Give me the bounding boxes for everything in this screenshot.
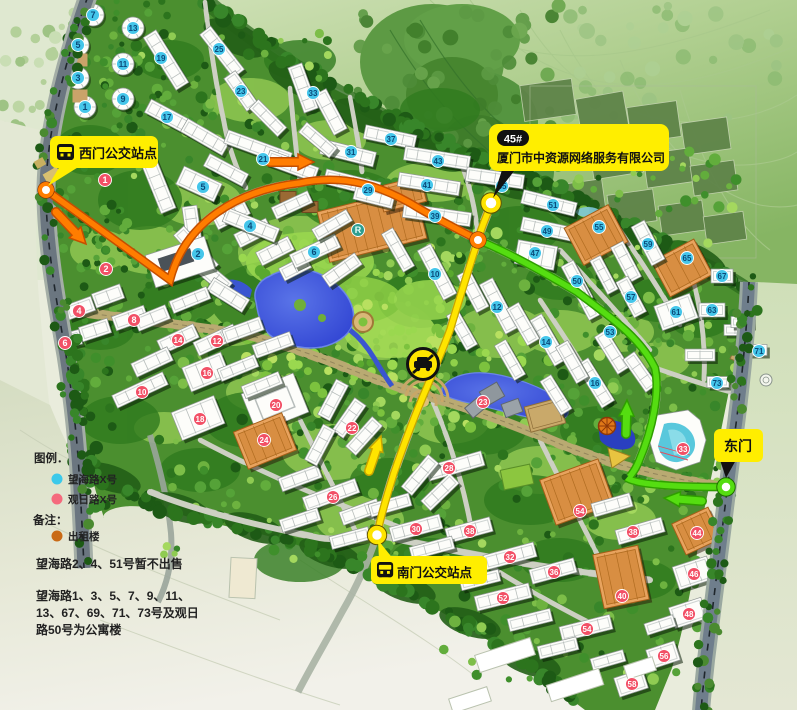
svg-text:44: 44 [693, 529, 702, 538]
svg-text:47: 47 [531, 249, 540, 258]
svg-text:50: 50 [573, 277, 582, 286]
svg-text:东门: 东门 [724, 438, 752, 454]
svg-text:望海路2、4、51号暂不出售: 望海路2、4、51号暂不出售 [36, 556, 183, 571]
svg-text:41: 41 [423, 181, 432, 190]
svg-text:56: 56 [660, 652, 669, 661]
svg-text:观日路X号: 观日路X号 [68, 493, 117, 506]
svg-text:28: 28 [445, 464, 454, 473]
svg-text:71: 71 [755, 347, 764, 356]
svg-text:26: 26 [329, 493, 338, 502]
svg-text:40: 40 [618, 592, 627, 601]
svg-text:30: 30 [412, 525, 421, 534]
svg-text:10: 10 [138, 388, 147, 397]
svg-text:46: 46 [690, 570, 699, 579]
svg-text:西门公交站点: 西门公交站点 [79, 146, 157, 161]
svg-text:61: 61 [672, 308, 681, 317]
svg-text:19: 19 [157, 54, 166, 63]
svg-text:备注：: 备注： [32, 513, 68, 527]
svg-text:39: 39 [431, 212, 440, 221]
svg-text:11: 11 [119, 60, 128, 69]
svg-text:14: 14 [542, 338, 551, 347]
svg-text:38: 38 [466, 527, 475, 536]
svg-text:12: 12 [213, 337, 222, 346]
svg-text:2: 2 [195, 249, 200, 259]
svg-text:16: 16 [591, 379, 600, 388]
svg-text:22: 22 [348, 424, 357, 433]
svg-text:6: 6 [311, 247, 316, 257]
svg-text:38: 38 [629, 528, 638, 537]
svg-text:58: 58 [628, 680, 637, 689]
svg-text:31: 31 [347, 148, 356, 157]
svg-text:5: 5 [200, 182, 205, 192]
svg-text:54: 54 [583, 625, 592, 634]
svg-text:25: 25 [215, 45, 224, 54]
svg-text:13、67、69、71、73号及观日: 13、67、69、71、73号及观日 [36, 605, 199, 620]
svg-text:67: 67 [718, 272, 727, 281]
svg-text:48: 48 [685, 610, 694, 619]
svg-text:18: 18 [196, 415, 205, 424]
svg-text:52: 52 [499, 594, 508, 603]
svg-text:14: 14 [174, 336, 183, 345]
svg-text:17: 17 [163, 113, 172, 122]
svg-text:10: 10 [431, 270, 440, 279]
svg-text:23: 23 [237, 87, 246, 96]
svg-text:21: 21 [259, 155, 268, 164]
svg-text:2: 2 [103, 264, 108, 274]
svg-text:54: 54 [576, 507, 585, 516]
svg-text:4: 4 [76, 306, 81, 316]
svg-text:路50号为公寓楼: 路50号为公寓楼 [36, 622, 121, 637]
svg-text:33: 33 [679, 445, 688, 454]
svg-text:63: 63 [708, 306, 717, 315]
svg-text:57: 57 [627, 293, 636, 302]
svg-text:4: 4 [247, 221, 252, 231]
svg-text:51: 51 [549, 201, 558, 210]
svg-text:43: 43 [434, 157, 443, 166]
svg-text:16: 16 [203, 369, 212, 378]
svg-text:9: 9 [120, 94, 125, 104]
svg-text:R: R [355, 225, 362, 235]
svg-text:12: 12 [493, 303, 502, 312]
svg-text:6: 6 [62, 338, 67, 348]
svg-text:1: 1 [82, 102, 87, 112]
svg-text:南门公交站点: 南门公交站点 [397, 565, 473, 580]
svg-text:53: 53 [606, 328, 615, 337]
svg-text:20: 20 [272, 401, 281, 410]
svg-text:59: 59 [644, 240, 653, 249]
svg-text:8: 8 [131, 315, 136, 325]
svg-text:32: 32 [506, 553, 515, 562]
svg-text:55: 55 [595, 223, 604, 232]
svg-text:45#: 45# [504, 134, 522, 146]
svg-text:65: 65 [683, 254, 692, 263]
svg-text:49: 49 [543, 227, 552, 236]
svg-text:出租楼: 出租楼 [68, 530, 100, 543]
svg-text:1: 1 [102, 175, 107, 185]
svg-text:望海路X号: 望海路X号 [68, 473, 117, 486]
svg-text:5: 5 [75, 40, 80, 50]
svg-text:29: 29 [364, 186, 373, 195]
svg-text:图例．: 图例． [34, 451, 69, 465]
svg-text:24: 24 [260, 436, 269, 445]
svg-text:23: 23 [479, 398, 488, 407]
svg-text:厦门市中资源网络服务有限公司: 厦门市中资源网络服务有限公司 [497, 150, 665, 165]
svg-text:望海路1、3、5、7、9、11、: 望海路1、3、5、7、9、11、 [36, 588, 190, 603]
svg-text:33: 33 [309, 89, 318, 98]
svg-text:73: 73 [713, 379, 722, 388]
svg-text:37: 37 [387, 135, 396, 144]
svg-text:13: 13 [129, 24, 138, 33]
svg-text:7: 7 [90, 10, 95, 20]
svg-text:3: 3 [75, 73, 80, 83]
svg-text:36: 36 [550, 568, 559, 577]
